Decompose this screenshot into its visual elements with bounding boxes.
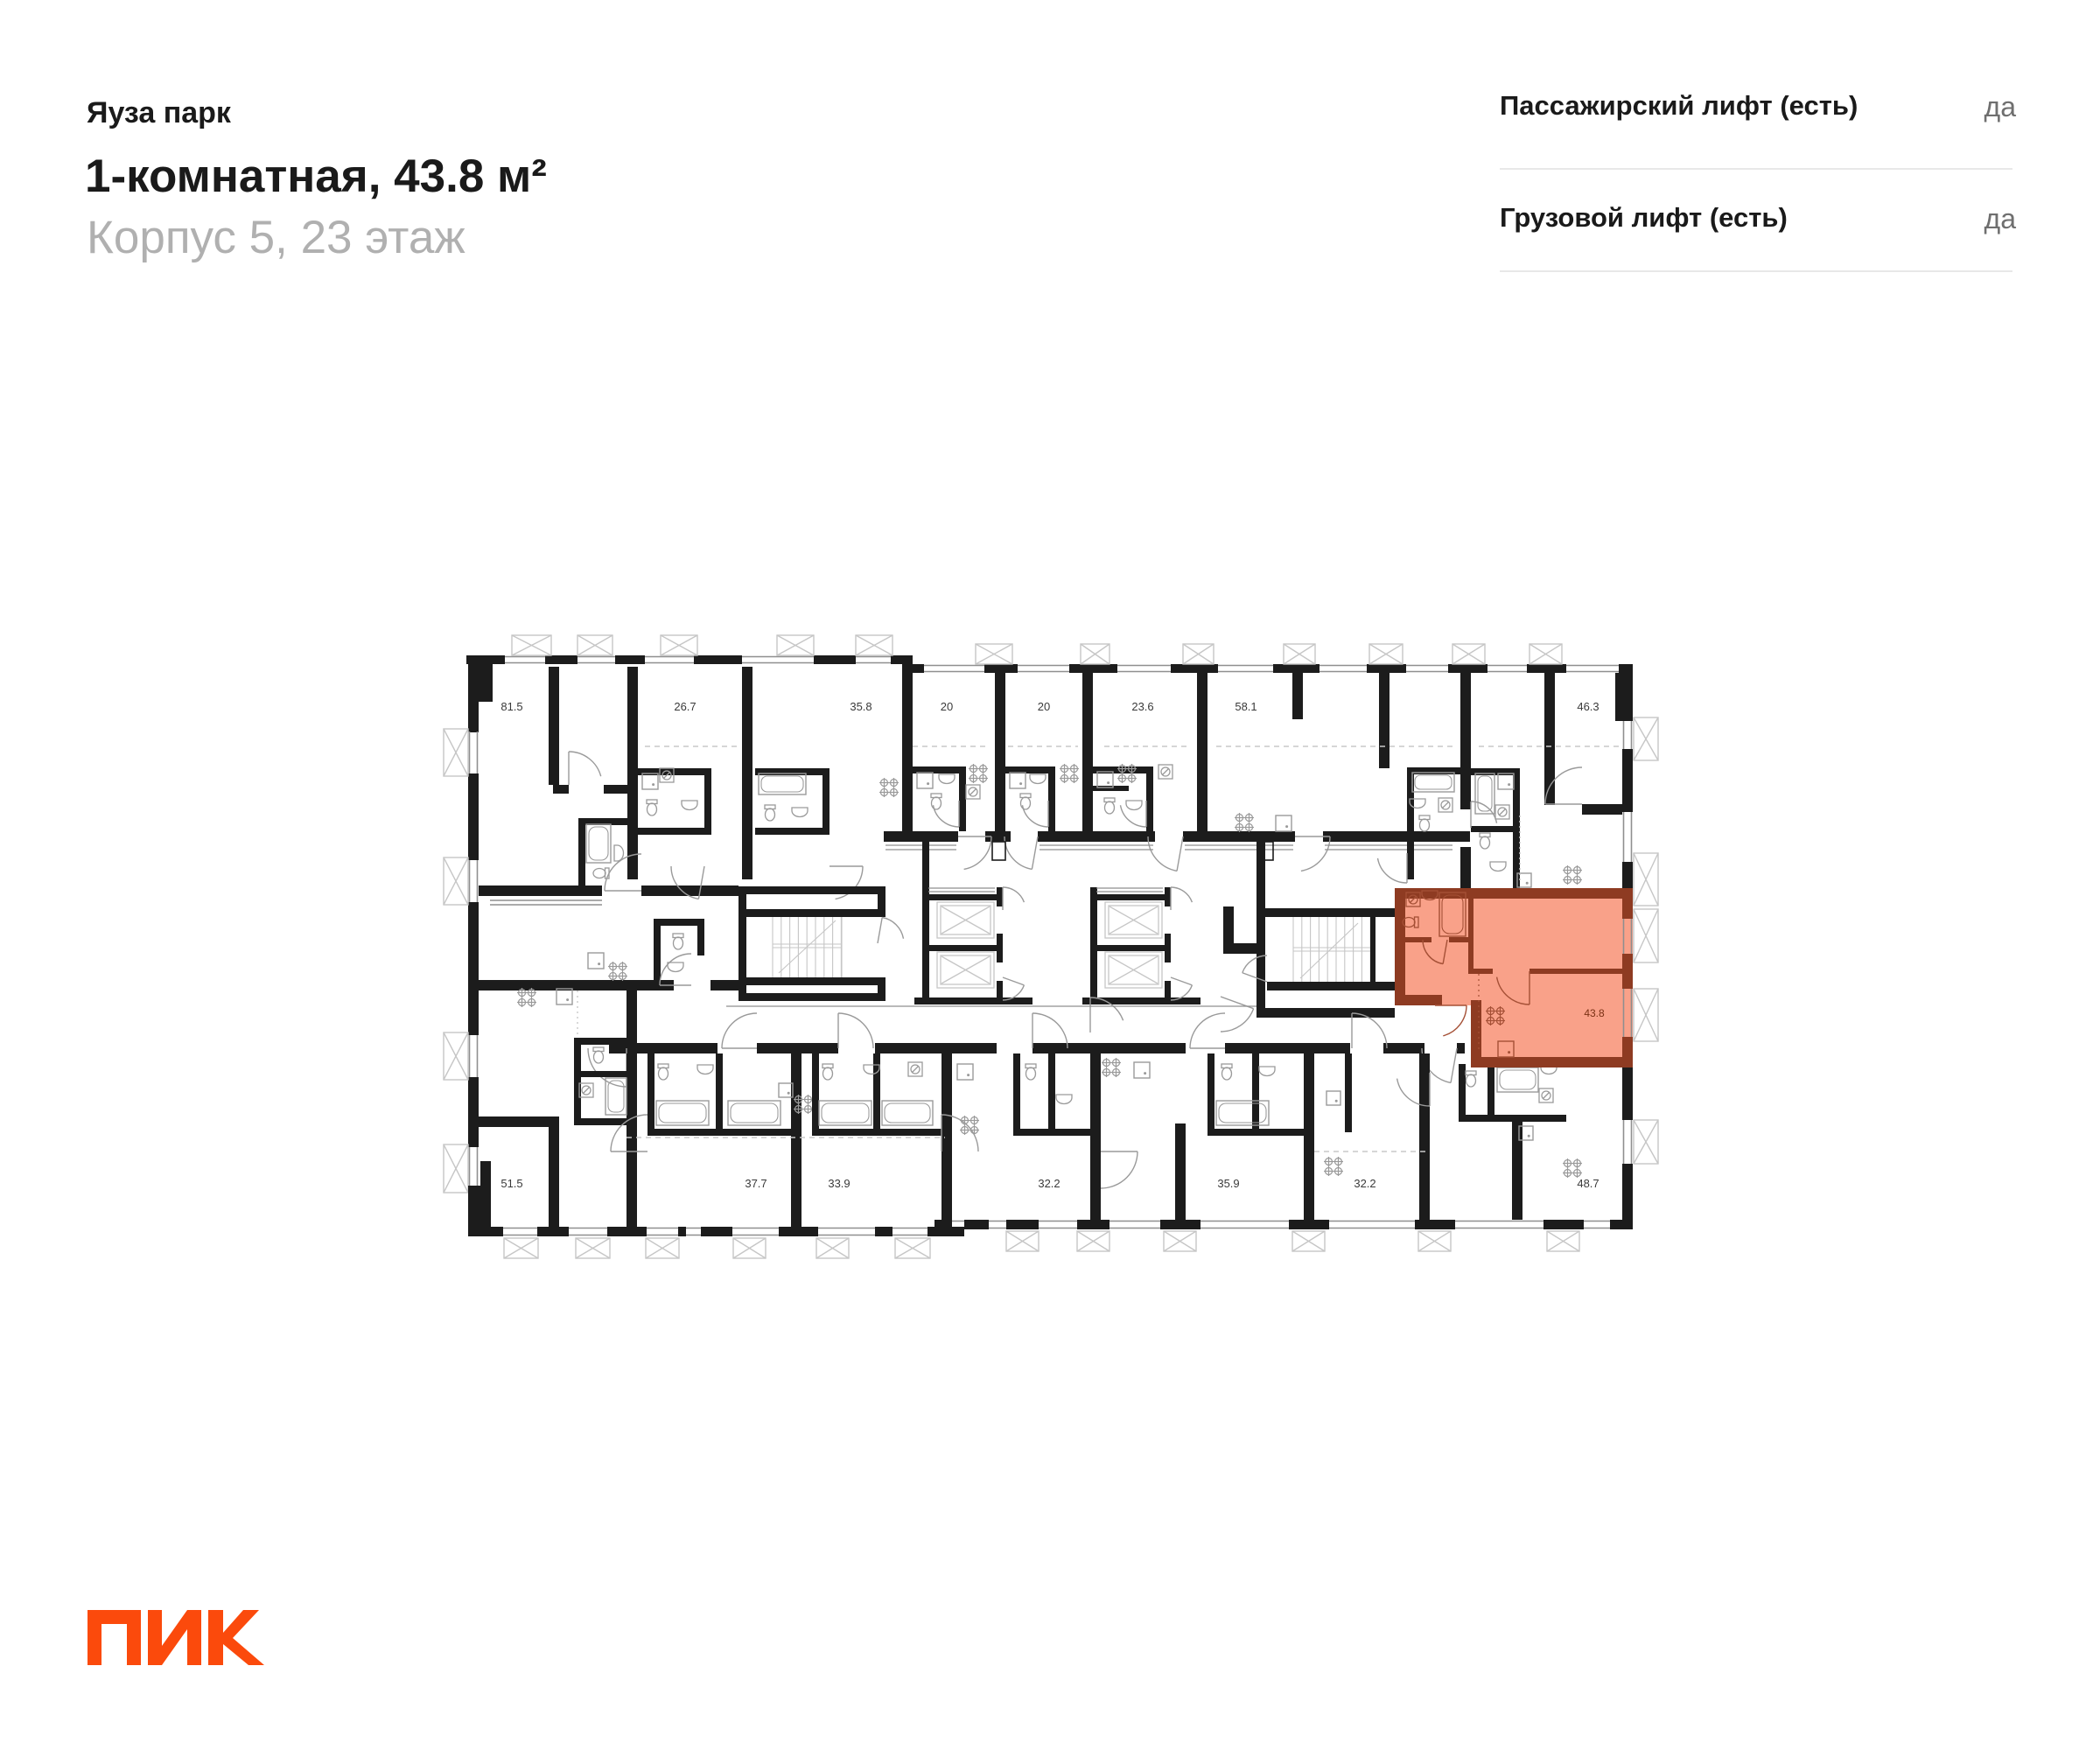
svg-text:37.7: 37.7: [745, 1177, 766, 1190]
svg-text:35.9: 35.9: [1217, 1177, 1239, 1190]
svg-text:20: 20: [941, 700, 953, 713]
svg-text:32.2: 32.2: [1038, 1177, 1060, 1190]
svg-text:48.7: 48.7: [1577, 1177, 1599, 1190]
svg-text:32.2: 32.2: [1354, 1177, 1375, 1190]
svg-text:20: 20: [1038, 700, 1050, 713]
svg-text:81.5: 81.5: [500, 700, 522, 713]
svg-text:33.9: 33.9: [828, 1177, 850, 1190]
svg-text:51.5: 51.5: [500, 1177, 522, 1190]
svg-text:46.3: 46.3: [1577, 700, 1599, 713]
svg-text:58.1: 58.1: [1235, 700, 1256, 713]
svg-text:26.7: 26.7: [674, 700, 696, 713]
svg-text:43.8: 43.8: [1584, 1007, 1605, 1019]
svg-text:35.8: 35.8: [850, 700, 871, 713]
svg-text:23.6: 23.6: [1131, 700, 1153, 713]
